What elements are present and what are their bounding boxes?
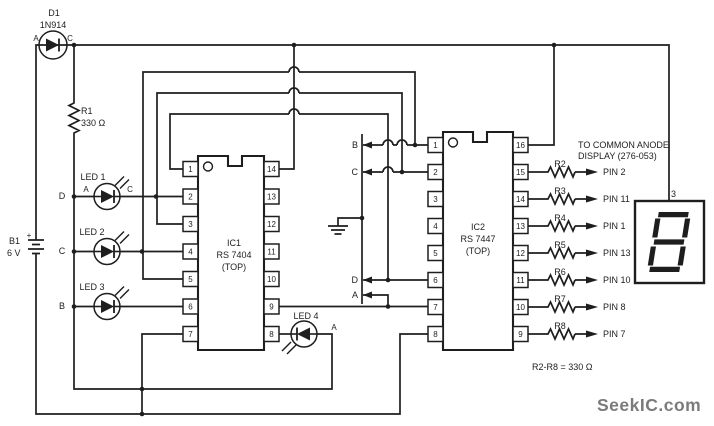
seekic-watermark: SeekIC.com: [597, 395, 701, 415]
ic1-pin-14: 14: [267, 165, 276, 174]
resistor-note: R2-R8 = 330 Ω: [532, 362, 593, 372]
ic1-pin-11: 11: [267, 248, 276, 257]
ic1-pin-1: 1: [188, 165, 193, 174]
seven-segment-display: [635, 201, 704, 283]
bus-label-c: C: [59, 246, 66, 256]
ic2-pin-9: 9: [518, 330, 523, 339]
ic2-pin-13: 13: [516, 222, 525, 231]
ic2-pin-4: 4: [433, 222, 438, 231]
led2-label: LED 2: [79, 227, 104, 237]
display-note-line1: TO COMMON ANODE: [578, 140, 669, 150]
circuit-schematic: D1 1N914 A C R1 330 Ω B1 6 V + D C B LED…: [0, 0, 714, 426]
signal-b: B: [352, 140, 358, 150]
led4-label: LED 4: [293, 311, 318, 321]
led3-label: LED 3: [79, 282, 104, 292]
battery-b1: [28, 240, 44, 254]
d1-ref: D1: [48, 8, 60, 18]
ic1-pin-5: 5: [188, 275, 193, 284]
signal-d: D: [352, 275, 359, 285]
ic1-part: RS 7404: [216, 250, 251, 260]
ic2-pin-8: 8: [433, 330, 438, 339]
wire-row-c: [363, 167, 428, 172]
ic2-part: RS 7447: [460, 234, 495, 244]
r1-zigzag: [69, 101, 79, 136]
ic2-pin-5: 5: [433, 249, 438, 258]
pin-dest-r8: PIN 7: [603, 329, 626, 339]
text-layer: D1 1N914 A C R1 330 Ω B1 6 V + D C B LED…: [7, 8, 701, 415]
led4-anode: A: [331, 323, 337, 332]
battery-ref: B1: [9, 236, 20, 246]
r6-ref: R6: [554, 267, 566, 277]
ic2-pin-1: 1: [433, 141, 438, 150]
r2-ref: R2: [554, 159, 566, 169]
ic2-pin-6: 6: [433, 276, 438, 285]
signal-a: A: [352, 290, 358, 300]
ic2-pin-15: 15: [516, 168, 525, 177]
r4-ref: R4: [554, 213, 566, 223]
led4-symbol: [282, 321, 317, 354]
ic2-pin-16: 16: [516, 141, 525, 150]
r1-ref: R1: [81, 106, 93, 116]
battery-voltage: 6 V: [7, 248, 21, 258]
ic1-pin-2: 2: [188, 193, 193, 202]
ic2-pin-10: 10: [516, 303, 525, 312]
ic1-orient: (TOP): [222, 262, 246, 272]
wire-row-b: [363, 140, 428, 145]
signal-c: C: [352, 167, 359, 177]
pin-dest-r2: PIN 2: [603, 167, 626, 177]
ic1-pin-4: 4: [188, 248, 193, 257]
ic1-pin-13: 13: [267, 193, 276, 202]
r5-ref: R5: [554, 240, 566, 250]
ic1-pin-9: 9: [269, 303, 274, 312]
led1-label: LED 1: [80, 172, 105, 182]
r1-value: 330 Ω: [81, 118, 106, 128]
r3-ref: R3: [554, 186, 566, 196]
ic2-pin-2: 2: [433, 168, 438, 177]
schematic-page: D1 1N914 A C R1 330 Ω B1 6 V + D C B LED…: [0, 0, 714, 426]
pin-dest-r7: PIN 8: [603, 302, 626, 312]
ic2-pin-7: 7: [433, 303, 438, 312]
ic1-pin-6: 6: [188, 303, 193, 312]
pin-dest-r5: PIN 13: [603, 248, 631, 258]
ic1-pin-3: 3: [188, 220, 193, 229]
display-pin-3: 3: [671, 189, 676, 199]
ic2-pin-3: 3: [433, 195, 438, 204]
pin-dest-r3: PIN 11: [603, 194, 630, 204]
ic1-pin-7: 7: [188, 330, 193, 339]
pin-dest-r4: PIN 1: [603, 221, 626, 231]
display-note-line2: DISPLAY (276-053): [578, 151, 657, 161]
ic2-pin-14: 14: [516, 195, 525, 204]
wire-ic2-pin16: [528, 45, 554, 145]
ground-symbol: [328, 218, 362, 234]
ic2-ref: IC2: [471, 222, 485, 232]
battery-plus: +: [27, 231, 32, 240]
r8-ref: R8: [554, 321, 566, 331]
wire-ic1-pin14: [279, 45, 294, 169]
d1-anode-label: A: [33, 34, 39, 43]
ic2-orient: (TOP): [466, 246, 490, 256]
ic1-pin-10: 10: [267, 275, 276, 284]
output-resistors: [545, 167, 598, 339]
pin-dest-r6: PIN 10: [603, 275, 631, 285]
r7-ref: R7: [554, 294, 566, 304]
bus-label-b: B: [59, 301, 65, 311]
ic2-pin-12: 12: [516, 249, 525, 258]
wire-a-stub: [363, 295, 388, 307]
ic1-pin-12: 12: [267, 220, 276, 229]
bus-label-d: D: [59, 191, 66, 201]
ic1-ref: IC1: [227, 238, 241, 248]
ic1-pin-8: 8: [269, 330, 274, 339]
signal-arrowheads: [363, 142, 372, 299]
led1-anode: A: [83, 185, 89, 194]
d1-cathode-label: C: [67, 34, 73, 43]
led1-cathode: C: [127, 185, 133, 194]
wire-ic1-pin7: [142, 334, 183, 414]
ic2-pin-11: 11: [516, 276, 525, 285]
d1-part: 1N914: [40, 20, 67, 30]
